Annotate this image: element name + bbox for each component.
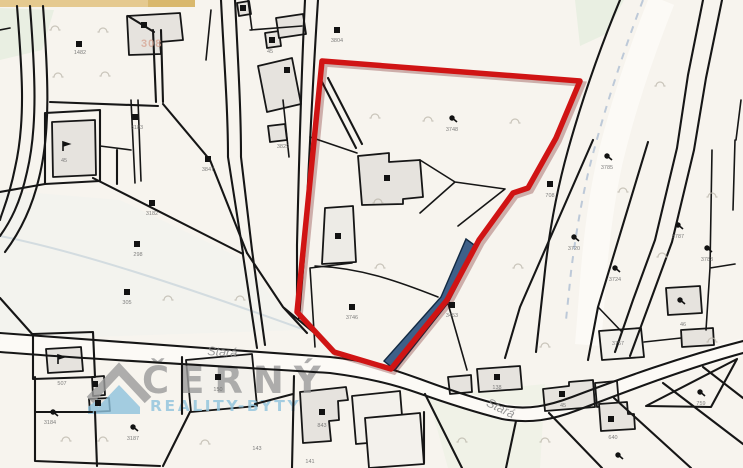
building — [52, 120, 96, 177]
building-mark-icon — [92, 381, 98, 387]
landuse-arc-icon — [98, 28, 109, 32]
building-mark-icon — [335, 233, 341, 239]
parcel-number-label: 3187 — [127, 436, 139, 442]
building — [46, 347, 83, 373]
landuse-arc-icon — [370, 114, 381, 118]
tree-mark-icon — [615, 452, 623, 459]
parcel-number-label: 507 — [57, 381, 66, 387]
parcel-number-label: 305 — [122, 300, 131, 306]
street-name-label: Stará — [207, 344, 238, 360]
building-mark-icon — [132, 114, 138, 120]
parcel-number-label: 640 — [608, 435, 617, 441]
building-mark-icon — [124, 289, 130, 295]
lane-line — [322, 78, 362, 148]
parcel-number-label: 3182 — [146, 211, 158, 217]
building-mark-icon — [95, 400, 101, 406]
building — [365, 413, 424, 468]
building-mark-icon — [349, 304, 355, 310]
landuse-arc-icon — [100, 72, 111, 76]
parcel-number-label: 45 — [61, 158, 67, 164]
tree-mark-icon — [680, 226, 684, 229]
stream — [384, 239, 477, 370]
building — [258, 58, 301, 112]
building-mark-icon — [384, 175, 390, 181]
building-mark-icon — [76, 41, 82, 47]
tree-mark-icon — [612, 265, 620, 272]
parcel-number-label: 141 — [305, 459, 314, 465]
parcel-number-label: 3746 — [346, 315, 358, 321]
parcel-number-label: 3783 — [701, 257, 713, 263]
watermark-tagline: REALITY-BYTY — [150, 397, 301, 415]
tree-mark-icon — [617, 269, 621, 272]
parcel-number-label: 138 — [492, 385, 501, 391]
tree-mark-icon — [135, 428, 139, 431]
tree-mark-icon — [709, 249, 713, 252]
top-road-strip-dark — [148, 0, 195, 7]
parcel-number-label: 150 — [213, 387, 222, 393]
landuse-arc-icon — [50, 26, 61, 30]
tree-mark-icon — [55, 413, 59, 416]
building — [681, 328, 714, 347]
tree-mark-icon — [620, 456, 624, 459]
building-mark-icon — [494, 374, 500, 380]
parcel-number-label: 45 — [560, 403, 566, 409]
cadastral-map[interactable]: ČERNÝ REALITY-BYTY — [0, 0, 743, 468]
parcel-line — [50, 102, 158, 106]
landuse-arc-icon — [375, 264, 386, 268]
building-in-parcel — [358, 153, 423, 205]
parcel-number-label: 3453 — [446, 313, 458, 319]
building-mark-icon — [319, 409, 325, 415]
landuse-arc-icon — [423, 117, 434, 121]
parcel-number-label: 45 — [267, 49, 273, 55]
landuse-arc-icon — [53, 73, 64, 77]
building-mark-icon — [149, 200, 155, 206]
landuse-arc-icon — [657, 253, 668, 257]
parcel-number-label: 3787 — [672, 234, 684, 240]
parcel-line — [100, 100, 141, 183]
parcel-number-label: 3785 — [601, 165, 613, 171]
building-mark-icon — [284, 67, 290, 73]
land-register-number: 308 — [141, 38, 162, 50]
tree-mark-icon — [697, 389, 705, 396]
building-mark-icon — [449, 302, 455, 308]
landuse-arc-icon — [98, 437, 109, 441]
landuse-arc-icon — [513, 264, 524, 268]
building-mark-icon — [269, 37, 275, 43]
building — [268, 124, 287, 142]
parcel-number-label: 3183 — [131, 125, 143, 131]
landuse-arc-icon — [61, 437, 72, 441]
tree-mark-icon — [571, 234, 579, 241]
tree-mark-icon — [675, 222, 683, 229]
tree-mark-icon — [702, 393, 706, 396]
building-mark-icon — [205, 156, 211, 162]
tree-mark-icon — [454, 119, 458, 122]
parcel-number-label: 708 — [545, 193, 554, 199]
building-mark-icon — [141, 22, 147, 28]
parcel-number-label: 1482 — [74, 50, 86, 56]
parcel-number-label: 759 — [696, 401, 705, 407]
building — [599, 402, 635, 431]
parcel-number-label: 3724 — [609, 277, 621, 283]
parcel-number-label: 298 — [133, 252, 142, 258]
tree-mark-icon — [130, 424, 138, 431]
parcel-number-label: 3757 — [612, 341, 624, 347]
tree-mark-icon — [576, 238, 580, 241]
landuse-arc-icon — [510, 119, 521, 123]
building-mark-icon — [608, 416, 614, 422]
parcel-number-label: 3748 — [446, 127, 458, 133]
building-mark-icon — [134, 241, 140, 247]
landuse-arc-icon — [618, 188, 629, 192]
parcel-number-label: 3804 — [331, 38, 343, 44]
parcel-number-label: 3720 — [568, 246, 580, 252]
parcel-number-label: 143 — [252, 446, 261, 452]
cadastral-map-viewport[interactable]: ČERNÝ REALITY-BYTY — [0, 0, 743, 468]
landuse-arc-icon — [200, 440, 211, 444]
parcel-number-label: 46 — [680, 322, 686, 328]
parcel-number-label: 3829 — [277, 144, 289, 150]
building-mark-icon — [559, 391, 565, 397]
tree-mark-icon — [449, 115, 457, 122]
building-mark-icon — [240, 5, 246, 11]
parcel-number-label: 3847 — [202, 167, 214, 173]
parcel-number-label: 3184 — [44, 420, 56, 426]
building — [666, 286, 702, 315]
building-mark-icon — [215, 374, 221, 380]
landuse-arc-icon — [655, 82, 666, 86]
building-mark-icon — [547, 181, 553, 187]
building-mark-icon — [334, 27, 340, 33]
parcel-number-label: 843 — [317, 423, 326, 429]
landuse-arc-icon — [540, 343, 551, 347]
watermark-brand: ČERNÝ — [142, 358, 331, 402]
parcel-line — [706, 100, 741, 330]
